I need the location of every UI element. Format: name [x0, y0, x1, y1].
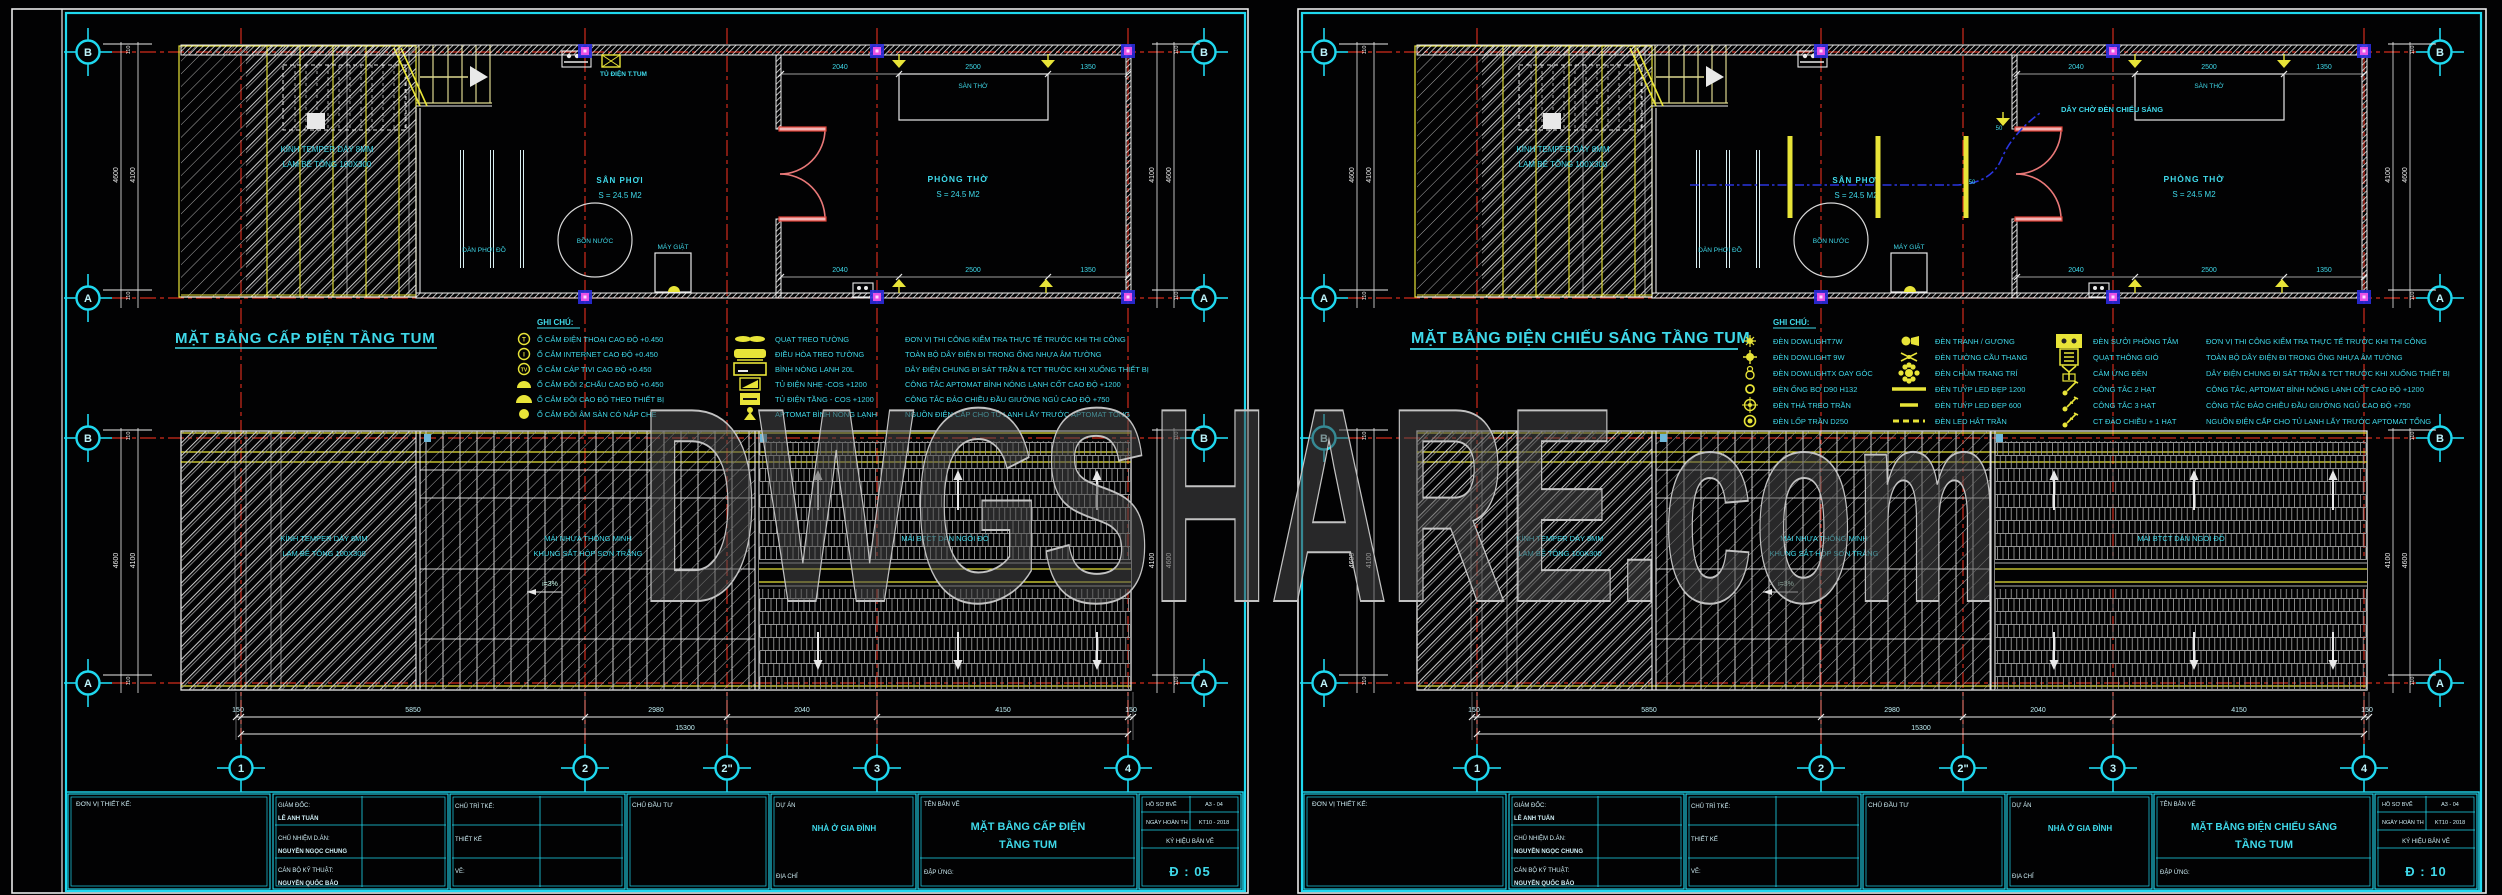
svg-text:i=3%: i=3%	[542, 581, 558, 588]
svg-text:2040: 2040	[2030, 707, 2046, 714]
svg-text:KÍNH TEMPER DÀY 8MM: KÍNH TEMPER DÀY 8MM	[280, 145, 373, 154]
svg-text:TẦNG TUM: TẦNG TUM	[2235, 838, 2293, 851]
svg-text:B: B	[2436, 433, 2444, 445]
svg-text:A: A	[84, 293, 92, 305]
svg-text:A3 - 04: A3 - 04	[1205, 802, 1223, 808]
svg-text:A: A	[1200, 293, 1208, 305]
svg-text:TỦ ĐIỆN T.TUM: TỦ ĐIỆN T.TUM	[600, 69, 647, 78]
svg-text:ĐẬP ỨNG:: ĐẬP ỨNG:	[2160, 869, 2190, 876]
svg-text:ĐÈN SƯỞI PHÒNG TẮM: ĐÈN SƯỞI PHÒNG TẮM	[2093, 337, 2178, 346]
svg-text:A: A	[1320, 293, 1328, 305]
svg-text:VẼ:: VẼ:	[455, 868, 465, 875]
svg-text:B: B	[84, 47, 92, 59]
svg-text:4600: 4600	[1166, 167, 1173, 183]
svg-text:2500: 2500	[965, 64, 981, 71]
svg-text:KT10 - 2018: KT10 - 2018	[1199, 820, 1229, 826]
svg-text:CHỦ NHIỆM D.ÁN:: CHỦ NHIỆM D.ÁN:	[278, 834, 330, 842]
svg-text:B: B	[1200, 47, 1208, 59]
svg-text:2980: 2980	[1884, 707, 1900, 714]
svg-text:VẼ:: VẼ:	[1691, 868, 1701, 875]
svg-text:50: 50	[1969, 180, 1976, 186]
svg-text:LÊ ANH TUẤN: LÊ ANH TUẤN	[278, 814, 318, 822]
svg-text:DÂY CHỜ ĐÈN CHIẾU SÁNG: DÂY CHỜ ĐÈN CHIẾU SÁNG	[2061, 104, 2163, 114]
svg-text:110: 110	[1362, 292, 1368, 301]
svg-text:110: 110	[126, 677, 132, 686]
svg-text:TOÀN BỘ DÂY ĐIỆN ĐI TRONG ỐNG: TOÀN BỘ DÂY ĐIỆN ĐI TRONG ỐNG NHỰA ÂM TƯ…	[2206, 352, 2403, 362]
svg-text:CÔNG TẮC 3 HẠT: CÔNG TẮC 3 HẠT	[2093, 401, 2156, 410]
svg-text:2980: 2980	[648, 707, 664, 714]
svg-text:4: 4	[2361, 763, 2368, 775]
svg-text:ĐƠN VỊ THIẾT KẾ:: ĐƠN VỊ THIẾT KẾ:	[76, 798, 132, 808]
svg-text:NGUYỄN NGỌC CHUNG: NGUYỄN NGỌC CHUNG	[1514, 848, 1583, 855]
svg-text:HỒ SƠ BVẼ: HỒ SƠ BVẼ	[1146, 801, 1177, 808]
svg-text:S = 24.5 M2: S = 24.5 M2	[2172, 190, 2216, 199]
svg-text:TẦNG TUM: TẦNG TUM	[999, 838, 1057, 851]
svg-text:4: 4	[1125, 763, 1132, 775]
svg-text:110: 110	[2410, 432, 2416, 441]
svg-text:GIÁM ĐỐC:: GIÁM ĐỐC:	[1514, 802, 1546, 809]
svg-text:PHÒNG THỜ: PHÒNG THỜ	[2163, 173, 2224, 184]
svg-text:4100: 4100	[1149, 167, 1156, 183]
svg-text:150: 150	[1125, 707, 1137, 714]
svg-text:ĐÈN DOWLIGHT7W: ĐÈN DOWLIGHT7W	[1773, 337, 1844, 346]
svg-text:110: 110	[1362, 677, 1368, 686]
svg-text:150: 150	[232, 707, 244, 714]
svg-text:MẶT BẰNG ĐIỆN CHIẾU SÁNG TẦNG: MẶT BẰNG ĐIỆN CHIẾU SÁNG TẦNG TUM	[1411, 328, 1750, 347]
svg-text:CHỦ TRÌ TKẾ:: CHỦ TRÌ TKẾ:	[455, 803, 494, 810]
svg-text:SÀN THỜ: SÀN THỜ	[958, 81, 988, 90]
svg-text:150: 150	[2361, 707, 2373, 714]
svg-text:BỒN NƯỚC: BỒN NƯỚC	[577, 235, 614, 245]
svg-text:CHỦ ĐẦU TƯ: CHỦ ĐẦU TƯ	[1868, 799, 1909, 809]
svg-text:A: A	[2436, 293, 2444, 305]
svg-text:Ổ CẮM CÁP TIVI CAO ĐỘ +0.450: Ổ CẮM CÁP TIVI CAO ĐỘ +0.450	[537, 365, 652, 374]
svg-text:MÁY GIẶT: MÁY GIẶT	[658, 242, 689, 251]
svg-text:4600: 4600	[113, 553, 120, 569]
svg-text:A: A	[84, 678, 92, 690]
svg-text:KÍNH TEMPER DÀY 8MM: KÍNH TEMPER DÀY 8MM	[280, 534, 367, 543]
svg-text:GHI CHÚ:: GHI CHÚ:	[537, 318, 573, 327]
svg-text:THIẾT KẾ: THIẾT KẾ	[455, 836, 482, 843]
svg-text:KÝ HIỆU BẢN VẼ: KÝ HIỆU BẢN VẼ	[1166, 837, 1214, 845]
svg-text:1350: 1350	[2316, 64, 2332, 71]
svg-text:1350: 1350	[1080, 267, 1096, 274]
svg-text:GHI CHÚ:: GHI CHÚ:	[1773, 318, 1809, 327]
svg-text:2040: 2040	[2068, 64, 2084, 71]
svg-text:4100: 4100	[130, 167, 137, 183]
svg-text:2: 2	[1818, 763, 1824, 775]
svg-text:MÁI NHỰA THÔNG MINH: MÁI NHỰA THÔNG MINH	[544, 534, 632, 543]
svg-text:CT ĐẢO CHIỀU + 1 HẠT: CT ĐẢO CHIỀU + 1 HẠT	[2093, 416, 2177, 426]
svg-text:DỰ ÁN: DỰ ÁN	[2012, 802, 2031, 809]
svg-text:110: 110	[1174, 677, 1180, 686]
svg-text:3: 3	[874, 763, 880, 775]
svg-text:S = 24.5 M2: S = 24.5 M2	[598, 191, 642, 200]
svg-text:B: B	[1320, 47, 1328, 59]
svg-text:LAM BÊ TÔNG 100X300: LAM BÊ TÔNG 100X300	[283, 160, 372, 169]
svg-text:SÂN PHƠI: SÂN PHƠI	[596, 176, 643, 185]
svg-text:DÂY ĐIỆN CHUNG ĐI SÁT TRẦN & T: DÂY ĐIỆN CHUNG ĐI SÁT TRẦN & TCT TRƯỚC K…	[2206, 368, 2450, 378]
svg-text:T: T	[522, 338, 526, 344]
svg-text:MẶT BẰNG ĐIỆN CHIẾU SÁNG: MẶT BẰNG ĐIỆN CHIẾU SÁNG	[2191, 820, 2337, 833]
svg-text:110: 110	[1174, 292, 1180, 301]
svg-text:2500: 2500	[2201, 64, 2217, 71]
svg-text:S = 24.5 M2: S = 24.5 M2	[936, 190, 980, 199]
svg-text:5850: 5850	[1641, 707, 1657, 714]
svg-text:NHÀ Ở GIA ĐÌNH: NHÀ Ở GIA ĐÌNH	[812, 824, 877, 833]
svg-text:110: 110	[126, 292, 132, 301]
svg-text:NGUYỄN QUỐC BẢO: NGUYỄN QUỐC BẢO	[278, 880, 339, 887]
svg-text:4100: 4100	[1366, 167, 1373, 183]
svg-text:ĐƠN VỊ THI CÔNG KIỂM TRA THỰC: ĐƠN VỊ THI CÔNG KIỂM TRA THỰC TẾ TRƯỚC K…	[2206, 336, 2427, 346]
svg-text:KT10 - 2018: KT10 - 2018	[2435, 820, 2465, 826]
svg-text:Ổ CẮM ĐÔI ÂM SÀN CÓ NẮP CHE: Ổ CẮM ĐÔI ÂM SÀN CÓ NẮP CHE	[537, 410, 656, 419]
svg-text:GIÁM ĐỐC:: GIÁM ĐỐC:	[278, 802, 310, 809]
svg-text:CÁN BỘ KỸ THUẬT:: CÁN BỘ KỸ THUẬT:	[278, 867, 334, 874]
svg-text:Đ : 05: Đ : 05	[1169, 864, 1210, 879]
svg-text:2": 2"	[1957, 763, 1968, 775]
svg-text:KHUNG SẮT HỘP SƠN TRẮNG: KHUNG SẮT HỘP SƠN TRẮNG	[534, 549, 643, 558]
svg-text:110: 110	[2410, 46, 2416, 55]
svg-text:CHỦ NHIỆM D.ÁN:: CHỦ NHIỆM D.ÁN:	[1514, 834, 1566, 842]
svg-text:15300: 15300	[1911, 725, 1931, 732]
svg-text:2500: 2500	[2201, 267, 2217, 274]
svg-text:NGUỒN ĐIỆN CẤP CHO TỦ LẠNH LẤY: NGUỒN ĐIỆN CẤP CHO TỦ LẠNH LẤY TRƯỚC APT…	[2206, 416, 2431, 426]
svg-text:1: 1	[1474, 763, 1480, 775]
svg-text:QUẠT THÔNG GIÓ: QUẠT THÔNG GIÓ	[2093, 353, 2159, 362]
svg-text:110: 110	[1362, 46, 1368, 55]
svg-text:CẢM ỨNG ĐÈN: CẢM ỨNG ĐÈN	[2093, 369, 2147, 378]
svg-text:110: 110	[2410, 677, 2416, 686]
svg-text:1350: 1350	[2316, 267, 2332, 274]
svg-text:TÊN BẢN VẼ: TÊN BẢN VẼ	[2160, 800, 2196, 808]
svg-text:3: 3	[2110, 763, 2116, 775]
svg-text:HỒ SƠ BVẼ: HỒ SƠ BVẼ	[2382, 801, 2413, 808]
svg-text:1350: 1350	[1080, 64, 1096, 71]
svg-text:B: B	[2436, 47, 2444, 59]
svg-text:LÊ ANH TUẤN: LÊ ANH TUẤN	[1514, 814, 1554, 822]
svg-text:ĐỊA CHỈ: ĐỊA CHỈ	[776, 873, 798, 880]
svg-text:A: A	[2436, 678, 2444, 690]
svg-text:ĐỊA CHỈ: ĐỊA CHỈ	[2012, 873, 2034, 880]
svg-text:KÝ HIỆU BẢN VẼ: KÝ HIỆU BẢN VẼ	[2402, 837, 2450, 845]
svg-text:CÔNG TẮC ĐẢO CHIỀU ĐẦU GIƯỜNG: CÔNG TẮC ĐẢO CHIỀU ĐẦU GIƯỜNG NGỦ CAO ĐỘ…	[2206, 400, 2411, 410]
svg-text:ĐƠN VỊ THI CÔNG KIỂM TRA THỰC: ĐƠN VỊ THI CÔNG KIỂM TRA THỰC TẾ TRƯỚC K…	[905, 334, 1126, 344]
svg-text:ĐƠN VỊ THIẾT KẾ:: ĐƠN VỊ THIẾT KẾ:	[1312, 798, 1368, 808]
svg-text:4150: 4150	[995, 707, 1011, 714]
svg-text:KÍNH TEMPER DÀY 8MM: KÍNH TEMPER DÀY 8MM	[1516, 145, 1609, 154]
svg-text:NGUYỄN NGỌC CHUNG: NGUYỄN NGỌC CHUNG	[278, 848, 347, 855]
svg-text:MÁY GIẶT: MÁY GIẶT	[1894, 242, 1925, 251]
svg-text:110: 110	[1174, 46, 1180, 55]
svg-text:QUẠT TREO TƯỜNG: QUẠT TREO TƯỜNG	[775, 335, 849, 344]
svg-text:LAM BÊ TÔNG 100X300: LAM BÊ TÔNG 100X300	[282, 549, 365, 558]
svg-text:2040: 2040	[794, 707, 810, 714]
svg-text:ĐÈN TRANH / GƯƠNG: ĐÈN TRANH / GƯƠNG	[1935, 337, 2015, 346]
svg-text:CÁN BỘ KỸ THUẬT:: CÁN BỘ KỸ THUẬT:	[1514, 867, 1570, 874]
svg-text:THIẾT KẾ: THIẾT KẾ	[1691, 836, 1718, 843]
svg-text:2040: 2040	[2068, 267, 2084, 274]
svg-text:MÁI BTCT DÁN NGÓI ĐỎ: MÁI BTCT DÁN NGÓI ĐỎ	[2137, 534, 2225, 543]
svg-text:S = 24.5 M2: S = 24.5 M2	[1834, 191, 1878, 200]
svg-text:110: 110	[126, 432, 132, 441]
svg-text:110: 110	[126, 46, 132, 55]
svg-text:NGÀY HOÀN TH: NGÀY HOÀN TH	[2382, 819, 2424, 826]
svg-text:2": 2"	[721, 763, 732, 775]
svg-text:4100: 4100	[2385, 553, 2392, 569]
svg-text:ĐẬP ỨNG:: ĐẬP ỨNG:	[924, 869, 954, 876]
svg-text:Đ : 10: Đ : 10	[2405, 864, 2446, 879]
svg-text:DWGSHARE.com: DWGSHARE.com	[640, 350, 2000, 660]
svg-text:LAM BÊ TÔNG 100X300: LAM BÊ TÔNG 100X300	[1519, 160, 1608, 169]
svg-text:DỰ ÁN: DỰ ÁN	[776, 802, 795, 809]
svg-text:NGÀY HOÀN TH: NGÀY HOÀN TH	[1146, 819, 1188, 826]
svg-text:NGUYỄN QUỐC BẢO: NGUYỄN QUỐC BẢO	[1514, 880, 1575, 887]
svg-text:SÀN THỜ: SÀN THỜ	[2194, 81, 2224, 90]
svg-text:CHỦ TRÌ TKẾ:: CHỦ TRÌ TKẾ:	[1691, 803, 1730, 810]
svg-text:15300: 15300	[675, 725, 695, 732]
svg-text:CÔNG TẮC 2 HẠT: CÔNG TẮC 2 HẠT	[2093, 385, 2156, 394]
svg-text:MẶT BẰNG CẤP ĐIỆN: MẶT BẰNG CẤP ĐIỆN	[971, 820, 1086, 833]
svg-text:A: A	[1200, 678, 1208, 690]
svg-text:B: B	[84, 433, 92, 445]
svg-text:NHÀ Ở GIA ĐÌNH: NHÀ Ở GIA ĐÌNH	[2048, 824, 2113, 833]
svg-text:CHỦ ĐẦU TƯ: CHỦ ĐẦU TƯ	[632, 799, 673, 809]
svg-text:A: A	[1320, 678, 1328, 690]
svg-text:4100: 4100	[130, 553, 137, 569]
svg-text:5850: 5850	[405, 707, 421, 714]
svg-text:2500: 2500	[965, 267, 981, 274]
svg-text:SÂN PHƠI: SÂN PHƠI	[1832, 176, 1879, 185]
svg-text:PHÒNG THỜ: PHÒNG THỜ	[927, 173, 988, 184]
svg-text:50: 50	[1996, 126, 2003, 132]
svg-text:A3 - 04: A3 - 04	[2441, 802, 2459, 808]
svg-text:4600: 4600	[113, 167, 120, 183]
svg-text:Ổ CẮM ĐIỆN THOẠI CAO ĐỘ +0.450: Ổ CẮM ĐIỆN THOẠI CAO ĐỘ +0.450	[537, 335, 663, 344]
svg-text:TÊN BẢN VẼ: TÊN BẢN VẼ	[924, 800, 960, 808]
svg-text:2: 2	[582, 763, 588, 775]
svg-text:2040: 2040	[832, 64, 848, 71]
svg-text:BỒN NƯỚC: BỒN NƯỚC	[1813, 235, 1850, 245]
svg-text:CÔNG TẮC, APTOMAT BÌNH NÓNG LẠ: CÔNG TẮC, APTOMAT BÌNH NÓNG LẠNH CỐT CAO…	[2206, 384, 2424, 394]
svg-text:4150: 4150	[2231, 707, 2247, 714]
svg-text:DÀN PHƠI ĐỒ: DÀN PHƠI ĐỒ	[1698, 244, 1742, 254]
svg-text:TV: TV	[521, 368, 528, 374]
svg-text:2040: 2040	[832, 267, 848, 274]
svg-text:1: 1	[238, 763, 244, 775]
svg-text:4600: 4600	[2402, 553, 2409, 569]
svg-text:I: I	[523, 353, 525, 359]
svg-text:4600: 4600	[2402, 167, 2409, 183]
svg-text:4100: 4100	[2385, 167, 2392, 183]
svg-text:110: 110	[2410, 292, 2416, 301]
svg-text:DÀN PHƠI ĐỒ: DÀN PHƠI ĐỒ	[462, 244, 506, 254]
svg-text:MẶT BẰNG CẤP ĐIỆN TẦNG TUM: MẶT BẰNG CẤP ĐIỆN TẦNG TUM	[175, 329, 436, 347]
svg-text:4600: 4600	[1349, 167, 1356, 183]
svg-text:150: 150	[1468, 707, 1480, 714]
